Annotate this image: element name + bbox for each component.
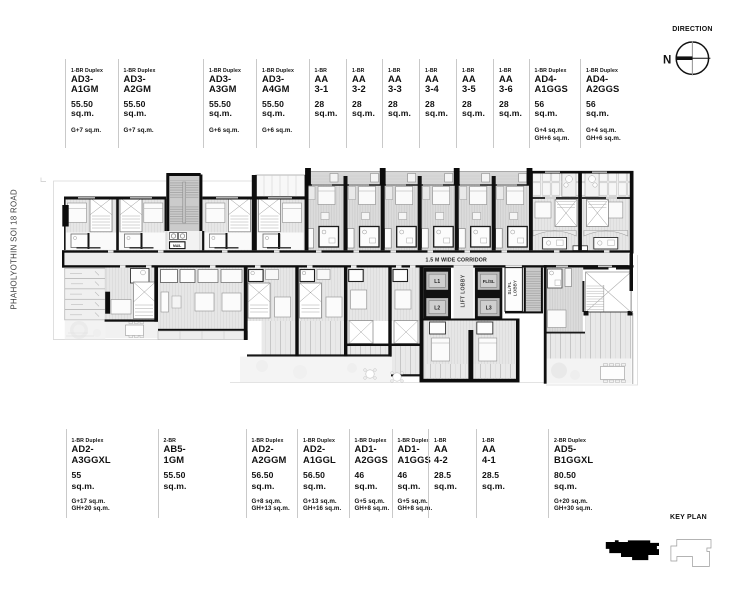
svg-text:L3: L3: [486, 306, 492, 312]
svg-text:N: N: [663, 54, 671, 66]
svg-text:FL/SL: FL/SL: [483, 279, 495, 284]
svg-text:L1: L1: [434, 279, 440, 285]
svg-text:SL/FL: SL/FL: [507, 281, 512, 294]
svg-text:LIFT LOBBY: LIFT LOBBY: [461, 274, 467, 307]
svg-text:1.5 M WIDE CORRIDOR: 1.5 M WIDE CORRIDOR: [426, 258, 487, 264]
svg-text:LOBBY: LOBBY: [513, 280, 518, 296]
svg-text:MAIL: MAIL: [173, 244, 181, 248]
svg-text:L2: L2: [434, 306, 440, 312]
